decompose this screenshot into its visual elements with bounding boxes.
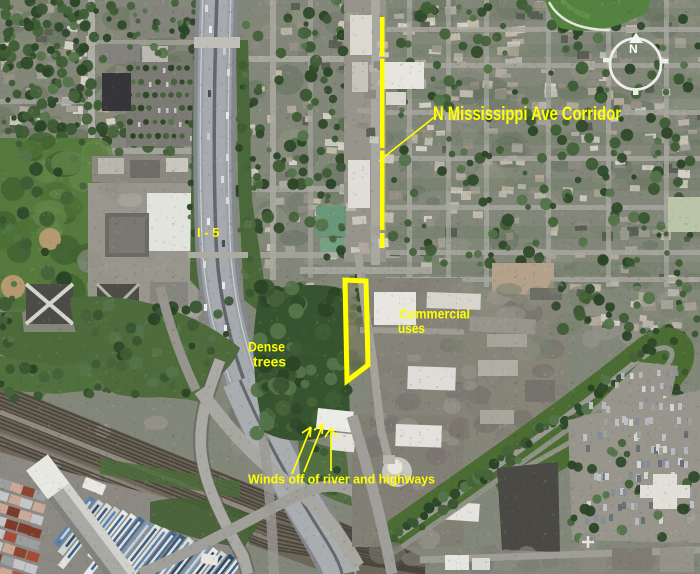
svg-text:uses: uses (398, 320, 425, 336)
svg-text:N: N (629, 42, 638, 56)
svg-text:Winds off of river and highway: Winds off of river and highways (248, 472, 435, 487)
svg-text:I - 5: I - 5 (197, 225, 219, 240)
svg-text:Dense: Dense (248, 339, 285, 355)
svg-text:trees: trees (253, 354, 286, 370)
svg-text:N Mississippi Ave Corridor: N Mississippi Ave Corridor (433, 104, 621, 125)
